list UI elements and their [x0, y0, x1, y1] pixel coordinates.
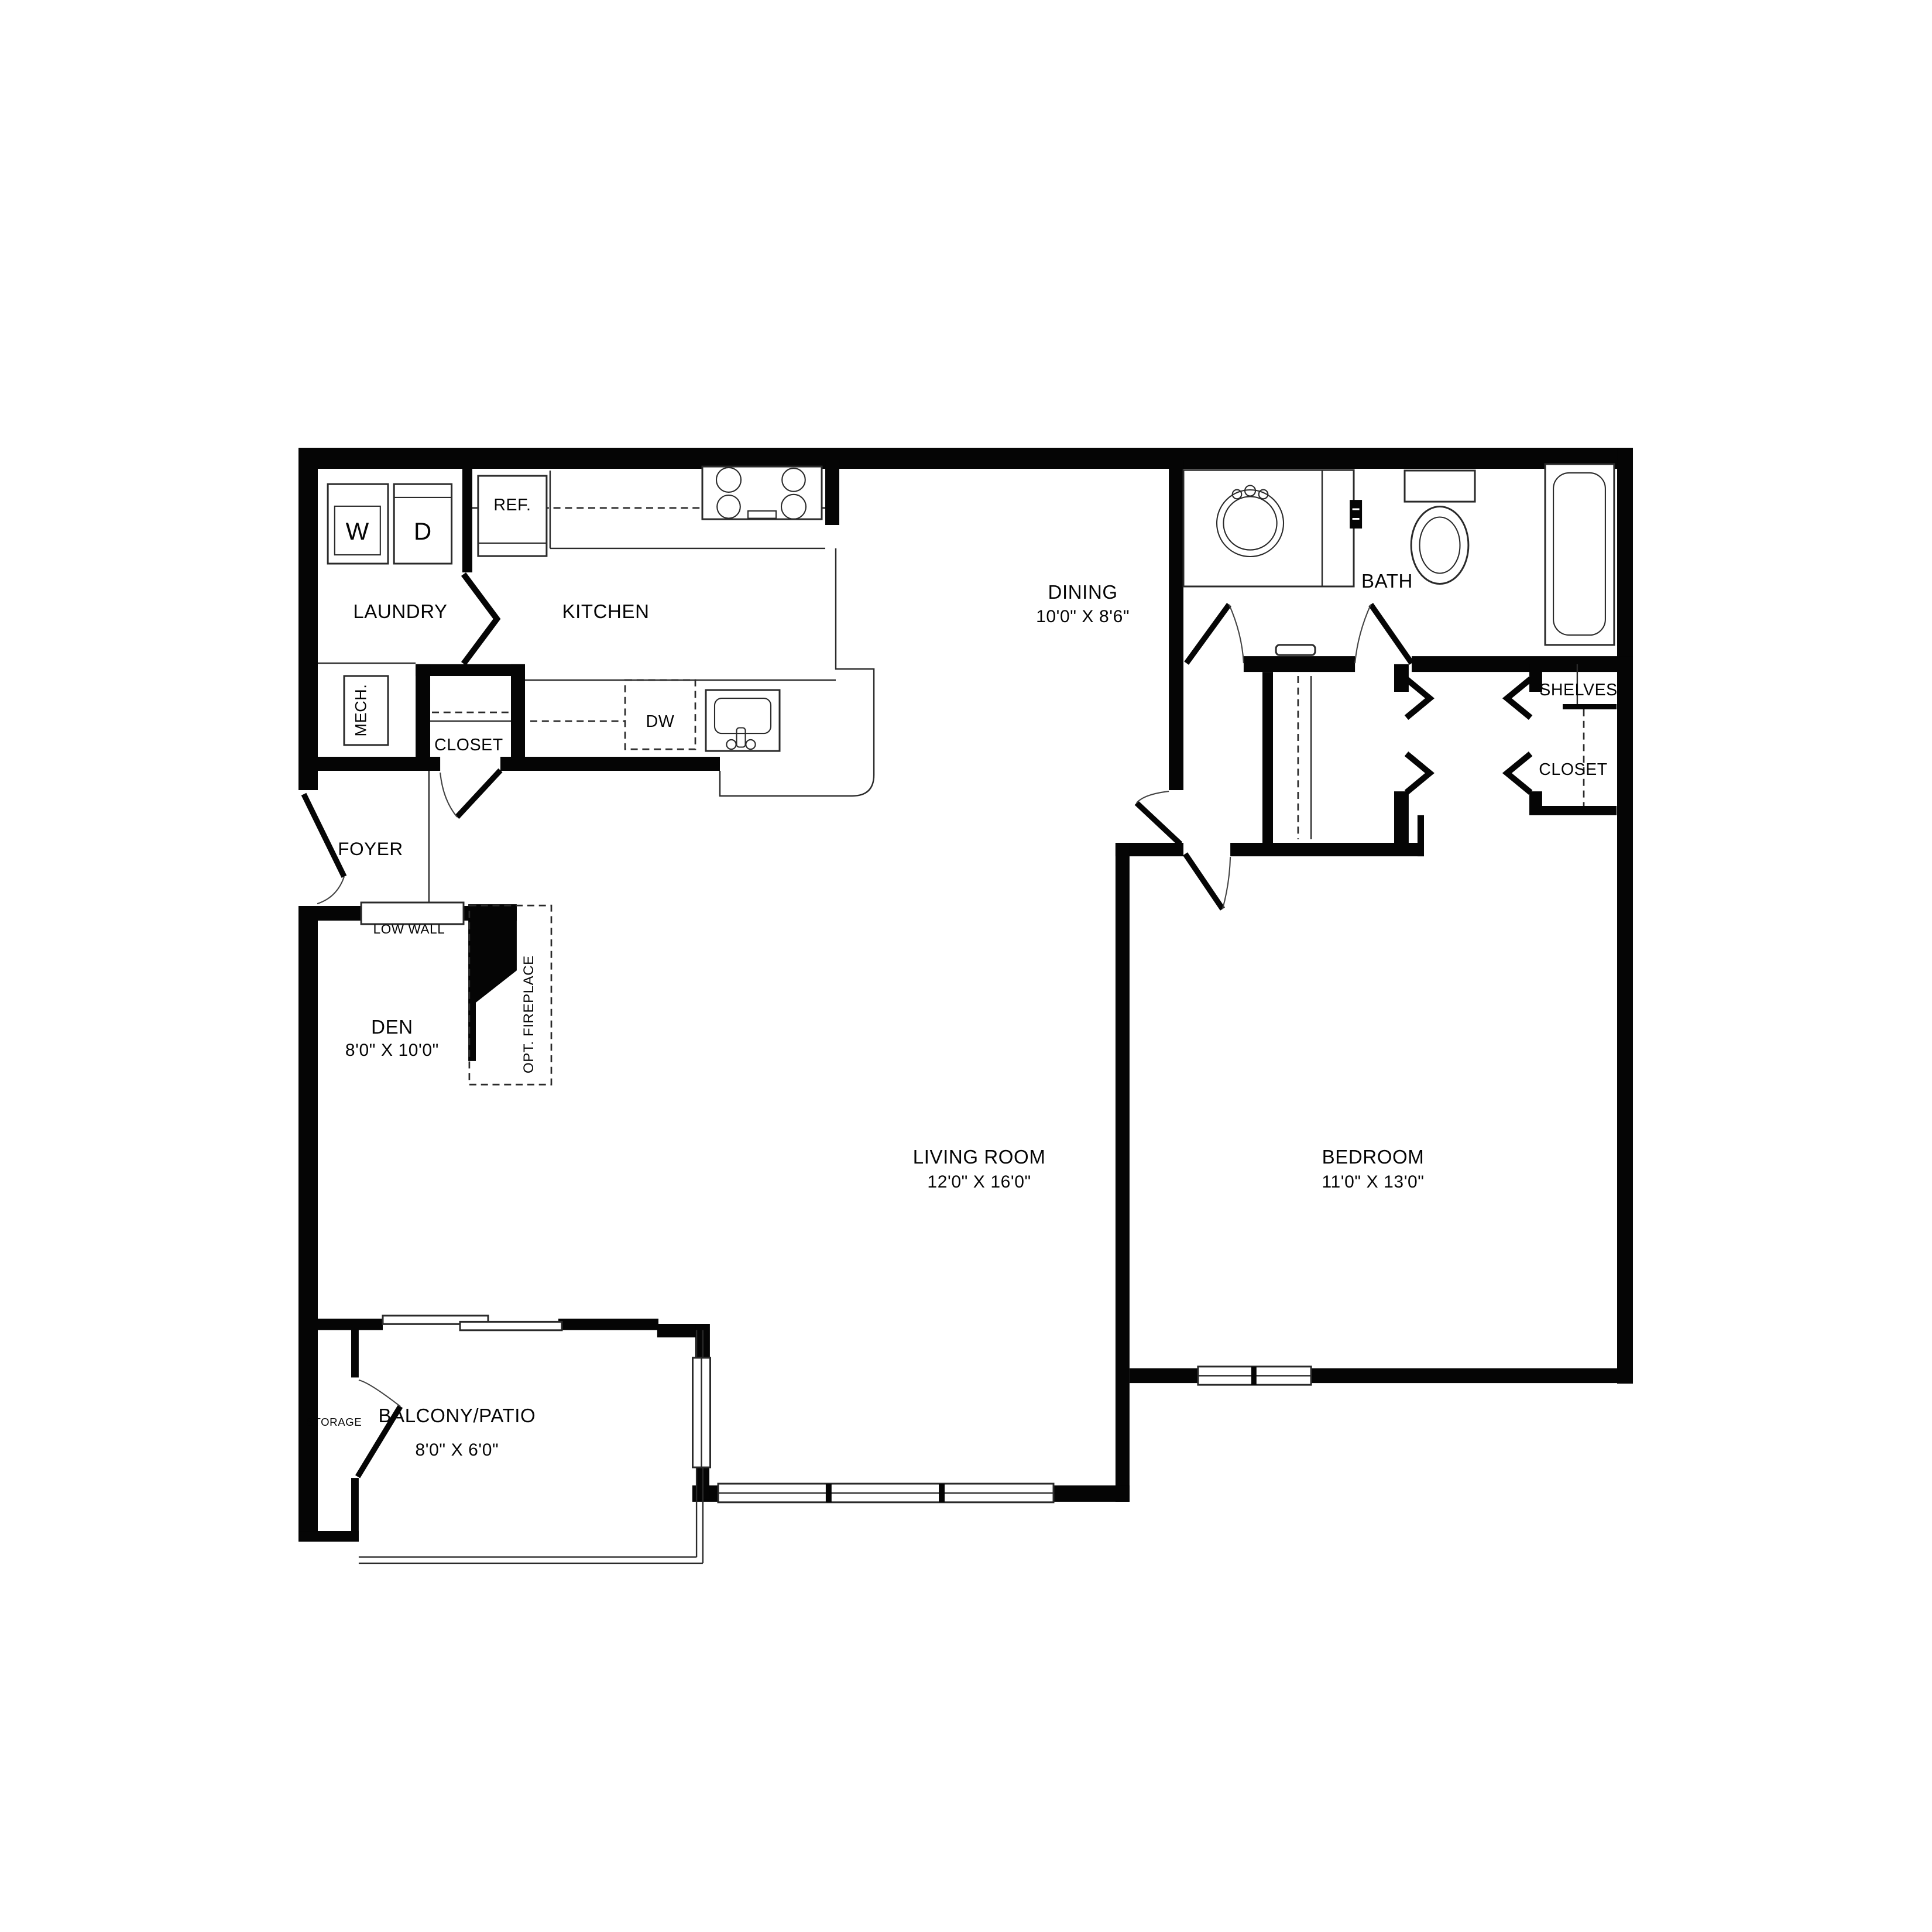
wall-north [298, 448, 1633, 469]
storage-door-arc [359, 1380, 400, 1406]
entry-door-leaf [304, 794, 344, 877]
bedroom-dims: 11'0" X 13'0" [1322, 1172, 1424, 1192]
wall-den-south-mid [558, 1319, 658, 1330]
refrigerator-icon [478, 476, 547, 556]
bath-door-right-leaf [1371, 605, 1412, 663]
bedroom-door-leaf [1185, 854, 1223, 909]
balcony-dims: 8'0" X 6'0" [416, 1440, 499, 1460]
wall-bath-south-right [1412, 656, 1633, 672]
wall-laundry-kitchen [462, 469, 472, 572]
closet-bifold-lower [1507, 754, 1530, 792]
wall-dining-east [1169, 460, 1183, 790]
balcony-label: BALCONY/PATIO [378, 1405, 536, 1426]
toilet-tank [1405, 471, 1475, 502]
wall-living-south-right [1053, 1485, 1130, 1502]
bath-door-left-arc [1229, 605, 1244, 663]
dining-dims: 10'0" X 8'6" [1036, 607, 1130, 626]
storage-label: STORAGE [307, 1416, 362, 1428]
bath-door-left-leaf [1186, 605, 1229, 663]
wall-closet-top [416, 664, 525, 676]
den-dims: 8'0" X 10'0" [345, 1041, 439, 1060]
wall-hall-closet-left [1262, 672, 1273, 843]
bedroom-label: BEDROOM [1322, 1146, 1425, 1168]
wall-storage-right-lower [351, 1478, 359, 1542]
bath-threshold [1276, 645, 1315, 655]
shelves-label: SHELVES [1539, 681, 1618, 699]
mech-label: MECH. [352, 684, 370, 737]
wall-storage-right-upper [351, 1330, 359, 1378]
opt-fireplace-label: OPT. FIREPLACE [521, 955, 537, 1073]
wall-west-upper [298, 448, 318, 790]
walls [298, 448, 1633, 1542]
living-window-divider2 [939, 1484, 945, 1502]
kitchen-sink-icon [706, 690, 780, 751]
linen-bifold-upper [1406, 679, 1430, 718]
wall-den-north-left [318, 906, 361, 921]
kitchen-fixtures [472, 466, 874, 796]
bedroom-door-arc [1223, 857, 1230, 909]
low-wall-label: LOW WALL [373, 922, 445, 936]
wall-west-lower [298, 906, 318, 1542]
dishwasher-label: DW [646, 712, 675, 731]
wall-east [1617, 448, 1633, 1384]
wall-kitchen-dining-stub [825, 460, 839, 525]
wall-bedroom-south-left [1130, 1368, 1198, 1383]
dining-hall-door-arc [1137, 791, 1169, 803]
entry-closet-door-arc [440, 773, 457, 817]
closet-bifold-upper [1507, 679, 1530, 718]
dining-label: DINING [1048, 581, 1118, 603]
bathtub-icon [1545, 464, 1614, 645]
living-room-label: LIVING ROOM [913, 1146, 1046, 1168]
wall-stub-br [1529, 791, 1542, 806]
floor-plan: LAUNDRY KITCHEN DINING 10'0" X 8'6" BATH… [0, 0, 1932, 1932]
wall-den-south-left [304, 1319, 383, 1330]
linen-bifold-lower [1406, 754, 1430, 792]
wall-foyer-top-right [500, 757, 720, 771]
den-label: DEN [371, 1016, 413, 1038]
laundry-label: LAUNDRY [353, 600, 447, 622]
bath-fixtures [1183, 464, 1614, 655]
wall-bath-south-mid [1244, 656, 1355, 672]
bath-label: BATH [1361, 570, 1413, 592]
wall-bedroom-north-right [1230, 843, 1424, 856]
living-room-dims: 12'0" X 16'0" [927, 1172, 1031, 1192]
refrigerator-label: REF. [493, 496, 531, 514]
wall-living-bedroom [1116, 843, 1130, 1502]
entry-door-arc [317, 877, 344, 904]
kitchen-label: KITCHEN [562, 600, 649, 622]
entry-closet-label: CLOSET [434, 736, 503, 754]
bedroom-window-divider [1251, 1367, 1257, 1385]
laundry-bifold-door [464, 574, 497, 664]
wall-foyer-top-left [318, 757, 440, 771]
dining-hall-door-leaf [1137, 803, 1181, 844]
wall-fitting [1350, 500, 1362, 529]
wall-storage-south [298, 1531, 359, 1542]
den-window-pane2 [460, 1322, 562, 1330]
wall-stub-tl [1394, 664, 1409, 692]
bath-door-right-arc [1355, 605, 1371, 663]
entry-closet-door-leaf [457, 770, 500, 817]
wall-stub-bl [1394, 791, 1409, 843]
floor-plan-drawing: LAUNDRY KITCHEN DINING 10'0" X 8'6" BATH… [0, 0, 1932, 1932]
foyer-label: FOYER [338, 838, 403, 859]
dryer-label: D [414, 517, 432, 545]
low-wall [361, 902, 464, 924]
balcony-rails [359, 1330, 711, 1563]
washer-label: W [346, 517, 369, 545]
shelf-bar [1563, 704, 1617, 709]
peninsula-outline [720, 548, 874, 796]
wall-bedroom-south-right [1311, 1368, 1633, 1383]
living-window-divider1 [826, 1484, 832, 1502]
wall-bedroom-closet-south [1529, 806, 1617, 815]
wall-closet-right [511, 664, 525, 758]
vanity-counter [1183, 470, 1354, 586]
doors [304, 574, 1530, 1477]
bedroom-closet-label: CLOSET [1539, 760, 1608, 779]
fireplace-mass [468, 904, 517, 1061]
wall-closet-left [416, 664, 430, 771]
